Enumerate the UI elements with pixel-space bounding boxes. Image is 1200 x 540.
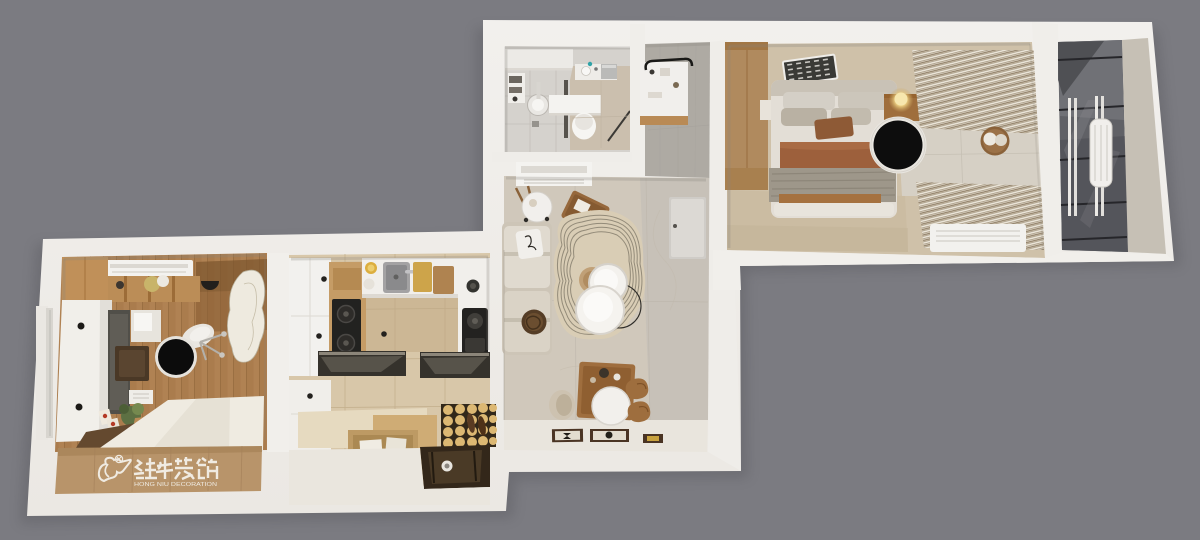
svg-text:HONG NIU DECORATION: HONG NIU DECORATION bbox=[134, 482, 217, 488]
